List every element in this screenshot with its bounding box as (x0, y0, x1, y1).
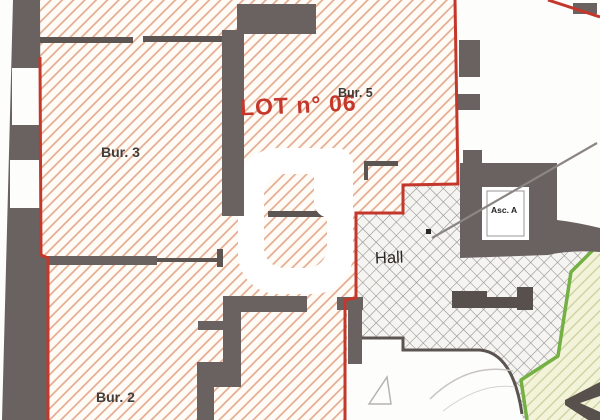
floor-plan-drawing (0, 0, 600, 420)
floor-plan-page: LOT n° 06 Bur. 5 Bur. 3 Bur. 2 Hall Asc.… (0, 0, 600, 420)
window-opening (12, 68, 40, 125)
survey-point-dot (426, 229, 431, 234)
window-opening (10, 160, 40, 208)
